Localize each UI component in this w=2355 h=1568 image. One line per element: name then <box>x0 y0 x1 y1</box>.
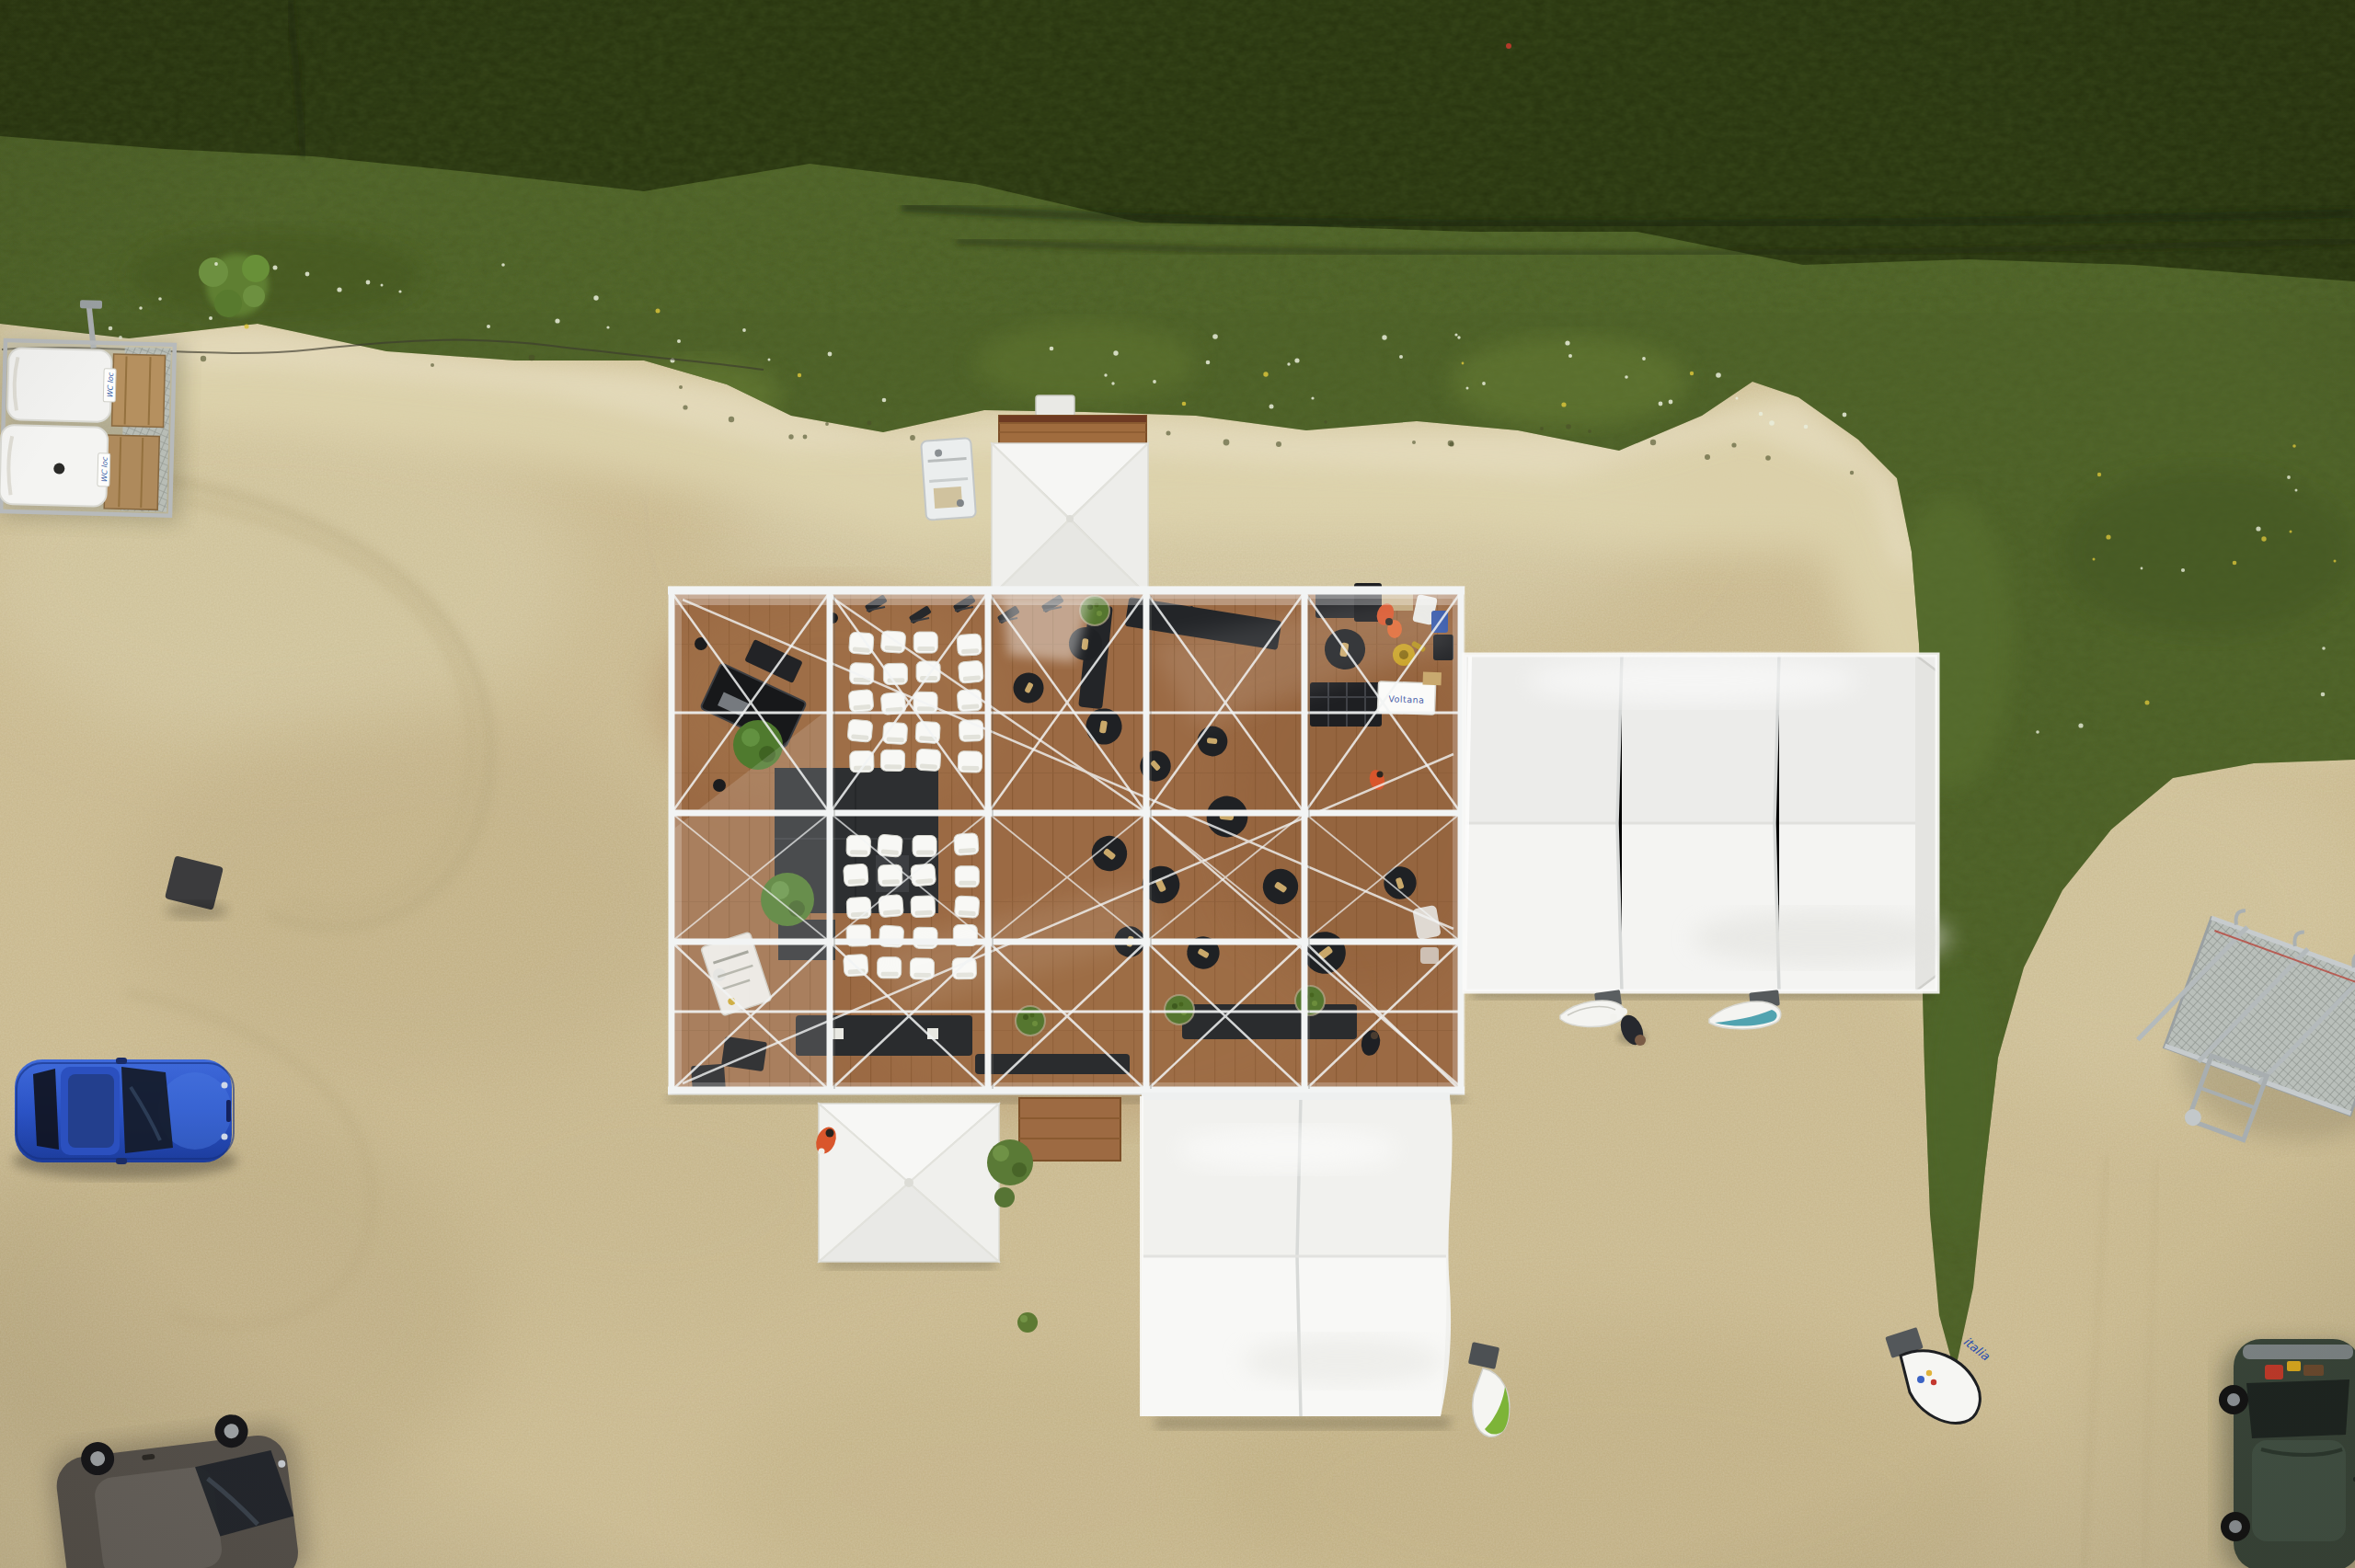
aerial-photo-scene: WC loc WC loc <box>0 0 2355 1568</box>
scene-canvas: WC loc WC loc <box>0 0 2355 1568</box>
vignette <box>0 0 2355 1568</box>
